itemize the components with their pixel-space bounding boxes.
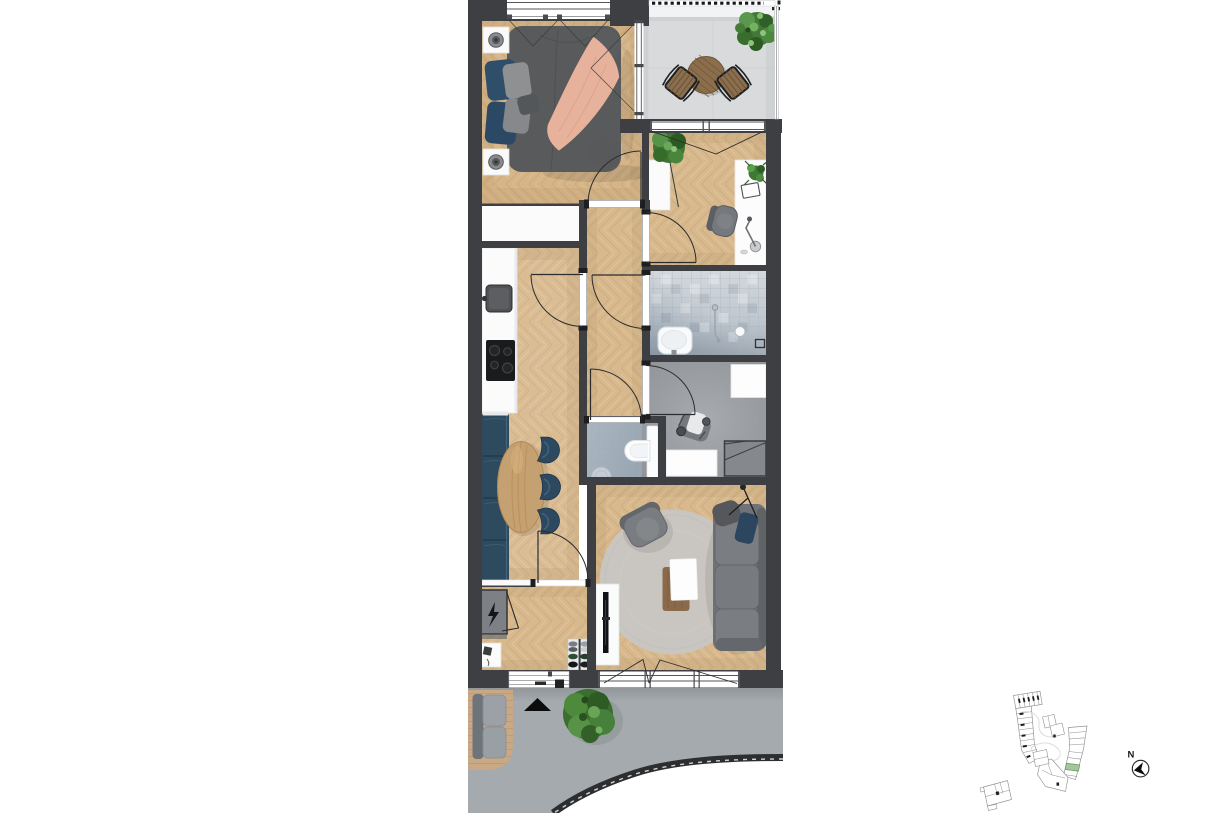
- svg-text:N: N: [1128, 750, 1135, 761]
